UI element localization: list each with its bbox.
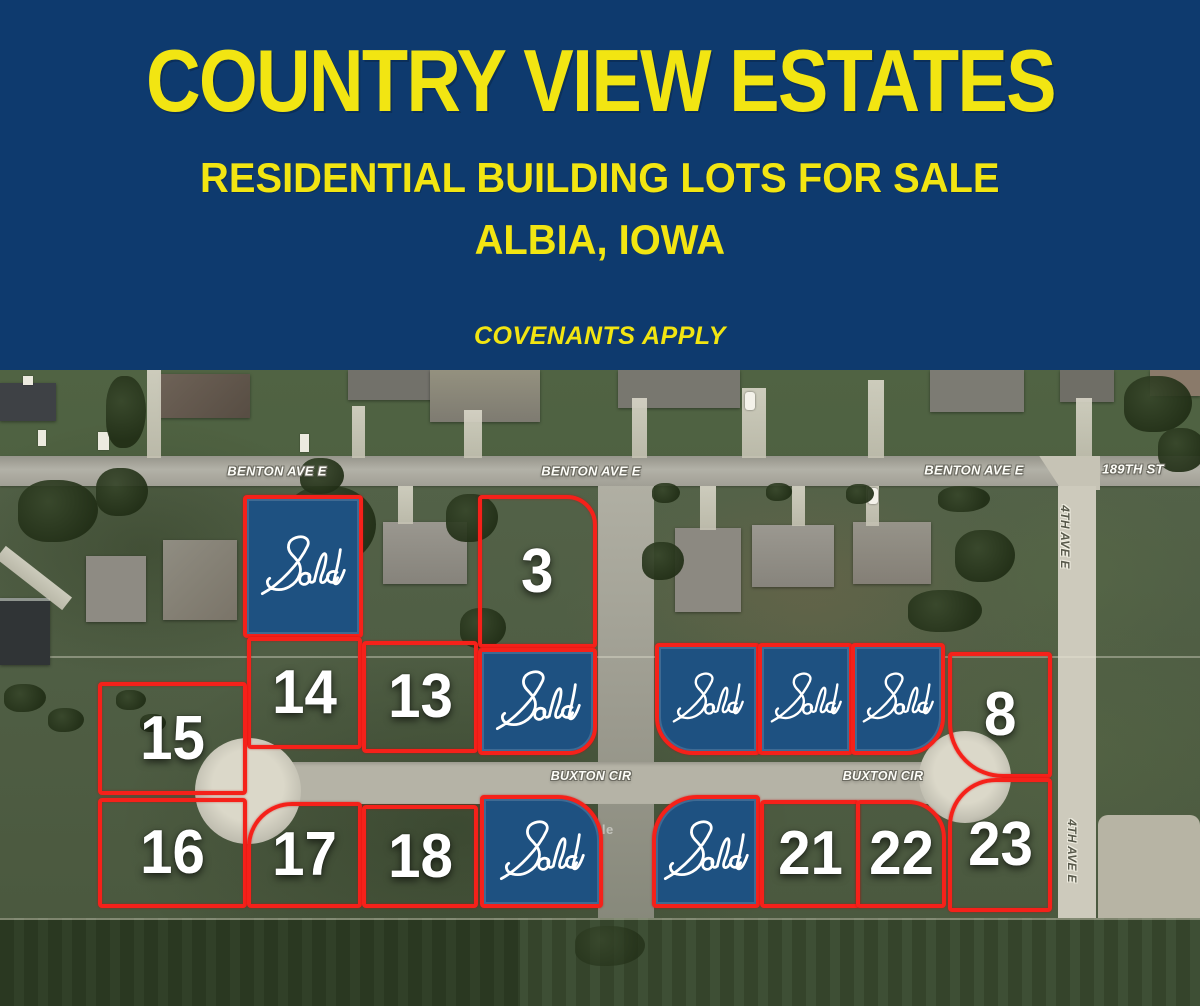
lot-sold-east-3: Sold — [851, 643, 945, 755]
aerial-map: BENTON AVE E BENTON AVE E BENTON AVE E 1… — [0, 370, 1200, 1006]
location-line: ALBIA, IOWA — [0, 216, 1200, 264]
lot-sold-east-1: Sold — [655, 643, 760, 755]
lot-23: 23 — [948, 778, 1052, 912]
house — [160, 374, 250, 418]
lot-8: 8 — [948, 652, 1052, 778]
house — [430, 370, 540, 422]
bush — [4, 684, 46, 712]
house — [163, 540, 237, 620]
lot-sold-south-1: Sold — [480, 795, 603, 908]
house — [348, 370, 432, 400]
driveway — [398, 486, 413, 524]
street-label-benton-1: BENTON AVE E — [227, 464, 326, 479]
house — [930, 370, 1024, 412]
house — [86, 556, 146, 622]
driveway — [632, 398, 647, 458]
street-label-4th-ave-north: 4TH AVE E — [1058, 505, 1072, 568]
subtitle: RESIDENTIAL BUILDING LOTS FOR SALE — [0, 154, 1200, 202]
driveway — [792, 486, 805, 526]
driveway — [868, 380, 884, 458]
crop-field-shade — [0, 920, 520, 1006]
flyer: COUNTRY VIEW ESTATES RESIDENTIAL BUILDIN… — [0, 0, 1200, 1006]
street-label-buxton-east: BUXTON CIR — [843, 769, 924, 783]
street-label-benton-2: BENTON AVE E — [541, 464, 640, 479]
tree — [652, 483, 680, 503]
tree — [1158, 428, 1200, 472]
lot-21: 21 — [760, 800, 860, 908]
driveway — [1076, 398, 1092, 458]
sold-script-icon — [764, 664, 848, 734]
driveway — [147, 370, 161, 458]
lot-3: 3 — [478, 495, 597, 648]
tree — [96, 468, 148, 516]
trailer — [38, 430, 46, 446]
lot-13: 13 — [362, 641, 478, 753]
header-banner: COUNTRY VIEW ESTATES RESIDENTIAL BUILDIN… — [0, 0, 1200, 370]
street-label-4th-ave-south: 4TH AVE E — [1065, 819, 1079, 882]
street-label-buxton-west: BUXTON CIR — [551, 769, 632, 783]
lot-16: 16 — [98, 798, 247, 908]
sold-script-icon — [656, 812, 756, 892]
driveway — [352, 406, 365, 458]
lot-22: 22 — [856, 800, 946, 908]
street-label-benton-3: BENTON AVE E — [924, 463, 1023, 478]
lot-sold-east-2: Sold — [758, 643, 853, 755]
lot-15: 15 — [98, 682, 247, 795]
house — [853, 522, 931, 584]
house — [675, 528, 741, 612]
sold-script-icon — [666, 664, 750, 734]
driveway — [700, 486, 716, 530]
trailer — [300, 434, 309, 452]
lot-sold-mid: Sold — [478, 648, 597, 755]
driveway — [464, 410, 482, 458]
lot-14: 14 — [247, 637, 362, 749]
street-label-189th-st: 189TH ST — [1102, 462, 1164, 477]
car — [745, 392, 755, 410]
trailer — [23, 376, 33, 385]
covenants-note: COVENANTS APPLY — [0, 322, 1200, 351]
lot-sold-south-2: Sold — [652, 795, 760, 908]
bush — [48, 708, 84, 732]
house — [752, 525, 834, 587]
sold-script-icon — [488, 662, 588, 742]
barn — [0, 598, 50, 665]
house — [0, 383, 56, 421]
sold-script-icon — [492, 812, 592, 892]
sold-script-icon — [253, 527, 353, 607]
lot-18: 18 — [362, 805, 478, 908]
lot-sold-nw: Sold — [243, 495, 363, 638]
lot-17: 17 — [247, 802, 362, 908]
page-title: COUNTRY VIEW ESTATES — [0, 30, 1200, 132]
tree — [18, 480, 98, 542]
sold-script-icon — [856, 664, 940, 734]
